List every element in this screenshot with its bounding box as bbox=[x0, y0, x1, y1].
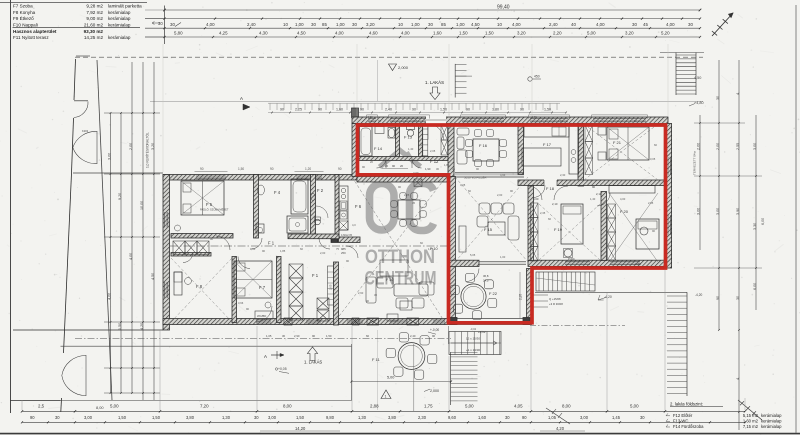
svg-text:45: 45 bbox=[412, 201, 415, 205]
svg-text:90: 90 bbox=[200, 167, 204, 171]
svg-text:+0,95: +0,95 bbox=[530, 115, 537, 119]
svg-text:90: 90 bbox=[432, 334, 436, 338]
svg-text:3,20: 3,20 bbox=[517, 31, 526, 36]
svg-text:5,00: 5,00 bbox=[630, 404, 639, 409]
svg-text:F 17: F 17 bbox=[543, 142, 552, 147]
svg-text:F 11: F 11 bbox=[372, 357, 380, 362]
svg-text:10: 10 bbox=[497, 22, 502, 27]
svg-text:+0,05: +0,05 bbox=[278, 367, 287, 371]
svg-text:5,20: 5,20 bbox=[661, 31, 670, 36]
svg-text:60: 60 bbox=[366, 334, 370, 338]
svg-text:1,00: 1,00 bbox=[500, 255, 506, 259]
svg-text:F 15: F 15 bbox=[484, 227, 493, 232]
svg-text:45: 45 bbox=[452, 167, 455, 171]
svg-text:2,90: 2,90 bbox=[294, 334, 300, 338]
svg-text:90: 90 bbox=[262, 249, 265, 253]
svg-text:250: 250 bbox=[341, 251, 346, 255]
svg-text:kerámialap: kerámialap bbox=[108, 16, 131, 21]
svg-text:+0,02: +0,02 bbox=[478, 330, 486, 334]
svg-text:85: 85 bbox=[441, 22, 446, 27]
svg-text:F 21: F 21 bbox=[613, 140, 622, 145]
svg-text:1,60: 1,60 bbox=[478, 415, 487, 420]
svg-text:90: 90 bbox=[338, 167, 342, 171]
svg-text:1,40: 1,40 bbox=[590, 197, 596, 201]
svg-text:20: 20 bbox=[385, 164, 389, 168]
svg-text:1,50: 1,50 bbox=[440, 107, 447, 111]
svg-text:1,50: 1,50 bbox=[118, 415, 127, 420]
svg-text:PUFF: PUFF bbox=[568, 257, 575, 261]
svg-text:kerámialap: kerámialap bbox=[761, 419, 782, 424]
svg-text:90: 90 bbox=[246, 307, 249, 311]
svg-text:5,05: 5,05 bbox=[470, 253, 476, 257]
svg-text:90: 90 bbox=[476, 167, 479, 171]
svg-text:laminált parketta: laminált parketta bbox=[108, 4, 142, 9]
svg-text:90: 90 bbox=[592, 185, 596, 189]
svg-text:9,80: 9,80 bbox=[326, 415, 335, 420]
svg-text:CENTRUM: CENTRUM bbox=[365, 268, 437, 290]
svg-text:F14 Fürdőszoba: F14 Fürdőszoba bbox=[673, 424, 704, 429]
svg-text:kerámialap: kerámialap bbox=[108, 35, 131, 40]
svg-text:2,20: 2,20 bbox=[553, 31, 562, 36]
svg-text:4,: 4, bbox=[736, 92, 740, 95]
svg-text:1,90: 1,90 bbox=[425, 167, 431, 171]
svg-text:8,00: 8,00 bbox=[283, 404, 292, 409]
svg-text:3,20: 3,20 bbox=[625, 31, 634, 36]
svg-text:4,50: 4,50 bbox=[151, 273, 155, 280]
svg-text:+4,80: +4,80 bbox=[694, 101, 704, 105]
svg-text:60: 60 bbox=[300, 247, 303, 251]
svg-text:3,20: 3,20 bbox=[151, 143, 155, 150]
svg-text:F 16: F 16 bbox=[479, 143, 488, 148]
svg-text:90: 90 bbox=[30, 415, 35, 420]
svg-text:4,00: 4,00 bbox=[107, 293, 111, 300]
svg-text:8,00: 8,00 bbox=[562, 404, 571, 409]
svg-text:90: 90 bbox=[634, 119, 637, 123]
svg-text:9,20: 9,20 bbox=[118, 193, 122, 200]
svg-text:450: 450 bbox=[534, 75, 540, 79]
svg-text:1,20: 1,20 bbox=[305, 167, 311, 171]
svg-text:6,00: 6,00 bbox=[753, 283, 757, 290]
svg-text:90: 90 bbox=[522, 415, 527, 420]
svg-text:6,00: 6,00 bbox=[761, 218, 765, 225]
svg-text:4,00: 4,00 bbox=[512, 22, 521, 27]
svg-text:2,000: 2,000 bbox=[398, 65, 409, 70]
svg-text:40: 40 bbox=[571, 22, 576, 27]
svg-text:45: 45 bbox=[643, 22, 648, 27]
svg-text:4,60: 4,60 bbox=[369, 31, 378, 36]
svg-text:F 4: F 4 bbox=[274, 190, 281, 195]
svg-text:30: 30 bbox=[311, 22, 316, 27]
svg-text:1,50: 1,50 bbox=[485, 31, 494, 36]
svg-text:60: 60 bbox=[560, 119, 563, 123]
svg-text:F 2: F 2 bbox=[317, 188, 324, 193]
svg-text:F12 Előtér: F12 Előtér bbox=[673, 413, 693, 418]
svg-text:2,30: 2,30 bbox=[418, 415, 427, 420]
svg-text:F 5: F 5 bbox=[206, 202, 213, 207]
svg-text:30: 30 bbox=[736, 296, 740, 300]
svg-text:4,25: 4,25 bbox=[219, 31, 228, 36]
svg-text:60: 60 bbox=[654, 143, 657, 147]
svg-text:2,00: 2,00 bbox=[716, 143, 720, 150]
svg-text:F 1: F 1 bbox=[312, 273, 319, 278]
svg-text:2,00: 2,00 bbox=[129, 143, 133, 150]
svg-text:kerámialap: kerámialap bbox=[761, 413, 782, 418]
svg-text:2,95: 2,95 bbox=[519, 294, 523, 300]
svg-text:1,75: 1,75 bbox=[428, 247, 434, 251]
svg-text:2,000: 2,000 bbox=[430, 389, 439, 393]
svg-text:2,35: 2,35 bbox=[540, 211, 546, 215]
svg-text:90: 90 bbox=[652, 229, 655, 233]
svg-text:1,05: 1,05 bbox=[548, 415, 557, 420]
svg-text:7,20: 7,20 bbox=[200, 404, 209, 409]
svg-text:+-0,00: +-0,00 bbox=[430, 328, 439, 332]
svg-text:2,10: 2,10 bbox=[552, 202, 558, 206]
svg-text:F7 Szoba: F7 Szoba bbox=[13, 4, 33, 9]
svg-text:30: 30 bbox=[254, 415, 259, 420]
svg-text:90: 90 bbox=[312, 334, 316, 338]
svg-text:30: 30 bbox=[640, 415, 645, 420]
svg-text:30: 30 bbox=[688, 22, 693, 27]
svg-text:2,40: 2,40 bbox=[247, 22, 256, 27]
svg-text:2,55: 2,55 bbox=[736, 143, 740, 150]
svg-text:4,00: 4,00 bbox=[206, 22, 215, 27]
svg-text:1,10: 1,10 bbox=[250, 247, 256, 251]
svg-text:4,00: 4,00 bbox=[401, 31, 410, 36]
svg-text:3,20: 3,20 bbox=[366, 22, 375, 27]
svg-text:90: 90 bbox=[280, 107, 284, 111]
svg-text:1,00: 1,00 bbox=[295, 22, 304, 27]
svg-text:-0,02: -0,02 bbox=[470, 327, 477, 331]
svg-text:21,60 m2: 21,60 m2 bbox=[84, 23, 104, 28]
svg-text:-4,20: -4,20 bbox=[604, 295, 612, 299]
svg-text:4,0: 4,0 bbox=[352, 223, 356, 227]
svg-text:4,50: 4,50 bbox=[471, 22, 480, 27]
svg-text:3,00: 3,00 bbox=[580, 415, 589, 420]
svg-text:30: 30 bbox=[374, 293, 377, 297]
svg-text:+0,95: +0,95 bbox=[366, 115, 373, 119]
svg-text:2,25: 2,25 bbox=[404, 193, 410, 197]
svg-text:3,00: 3,00 bbox=[753, 143, 757, 150]
svg-text:30: 30 bbox=[632, 22, 637, 27]
svg-text:90: 90 bbox=[466, 107, 470, 111]
svg-text:F 22: F 22 bbox=[489, 291, 498, 296]
svg-text:1,00: 1,00 bbox=[411, 22, 420, 27]
svg-text:2,40: 2,40 bbox=[385, 107, 392, 111]
svg-text:1. LAKÁS: 1. LAKÁS bbox=[425, 80, 444, 85]
svg-text:1,60 m2: 1,60 m2 bbox=[743, 419, 759, 424]
svg-text:2. lakás földszint:: 2. lakás földszint: bbox=[670, 401, 703, 406]
svg-text:1,50: 1,50 bbox=[152, 415, 161, 420]
svg-text:7,15 m2: 7,15 m2 bbox=[743, 424, 759, 429]
svg-text:30: 30 bbox=[352, 22, 357, 27]
svg-text:10: 10 bbox=[283, 22, 288, 27]
svg-text:A: A bbox=[240, 96, 243, 101]
svg-text:4,20: 4,20 bbox=[556, 426, 565, 431]
svg-text:30: 30 bbox=[282, 334, 286, 338]
svg-text:5,80: 5,80 bbox=[174, 31, 183, 36]
svg-text:1,45: 1,45 bbox=[612, 415, 621, 420]
svg-text:90: 90 bbox=[412, 107, 416, 111]
svg-text:1,60: 1,60 bbox=[336, 107, 343, 111]
svg-text:F11 Nyitott terasz: F11 Nyitott terasz bbox=[13, 35, 49, 40]
svg-text:4,05: 4,05 bbox=[514, 404, 523, 409]
svg-text:F 10: F 10 bbox=[386, 278, 393, 282]
svg-text:2,5: 2,5 bbox=[38, 404, 45, 409]
svg-text:30: 30 bbox=[170, 22, 175, 27]
svg-text:20: 20 bbox=[370, 160, 373, 164]
svg-text:2,25: 2,25 bbox=[412, 119, 418, 123]
svg-text:2,30: 2,30 bbox=[560, 173, 566, 177]
svg-text:1,30: 1,30 bbox=[358, 415, 367, 420]
svg-text:1,05: 1,05 bbox=[266, 334, 272, 338]
svg-text:+3 R 30/08: +3 R 30/08 bbox=[549, 302, 563, 306]
svg-text:Hasznos alapterület: Hasznos alapterület bbox=[13, 29, 57, 34]
svg-text:K293: K293 bbox=[82, 129, 89, 133]
svg-text:TERVEZETT 04-p: TERVEZETT 04-p bbox=[693, 150, 697, 175]
svg-text:4,00: 4,00 bbox=[129, 253, 133, 260]
svg-text:F 6: F 6 bbox=[355, 204, 362, 209]
svg-text:2,05: 2,05 bbox=[430, 149, 436, 153]
svg-text:4,20: 4,20 bbox=[140, 323, 144, 330]
svg-text:3,00: 3,00 bbox=[268, 415, 277, 420]
svg-text:F 13: F 13 bbox=[404, 135, 413, 140]
svg-text:5,00: 5,00 bbox=[387, 376, 394, 380]
svg-text:5,00: 5,00 bbox=[110, 404, 119, 409]
svg-text:90: 90 bbox=[716, 296, 720, 300]
svg-text:1,00: 1,00 bbox=[456, 22, 465, 27]
svg-text:F 8: F 8 bbox=[196, 284, 203, 289]
svg-text:90: 90 bbox=[362, 165, 365, 169]
svg-text:60: 60 bbox=[468, 189, 471, 193]
svg-text:4,60x2,05: 4,60x2,05 bbox=[341, 234, 353, 237]
svg-text:F 20: F 20 bbox=[620, 209, 629, 214]
svg-text:F 7: F 7 bbox=[259, 285, 266, 290]
svg-text:F 18: F 18 bbox=[546, 186, 555, 191]
svg-text:90: 90 bbox=[360, 107, 364, 111]
svg-text:1,85: 1,85 bbox=[444, 163, 450, 167]
svg-text:4,05: 4,05 bbox=[460, 183, 466, 187]
svg-text:90: 90 bbox=[318, 107, 322, 111]
svg-text:60: 60 bbox=[420, 241, 423, 245]
svg-text:1,50: 1,50 bbox=[296, 415, 305, 420]
svg-text:2,88: 2,88 bbox=[370, 404, 379, 409]
svg-text:1,80: 1,80 bbox=[492, 107, 499, 111]
svg-text:9,00 m2: 9,00 m2 bbox=[86, 16, 103, 21]
svg-text:2,40: 2,40 bbox=[410, 334, 416, 338]
svg-text:93,30 m2: 93,30 m2 bbox=[84, 29, 104, 34]
svg-text:90: 90 bbox=[346, 259, 349, 263]
svg-text:30: 30 bbox=[428, 22, 433, 27]
svg-text:OTTHON: OTTHON bbox=[365, 246, 435, 268]
svg-text:4,30: 4,30 bbox=[259, 31, 268, 36]
svg-text:2,05: 2,05 bbox=[329, 284, 333, 290]
svg-text:5,00: 5,00 bbox=[465, 404, 474, 409]
svg-text:3,90: 3,90 bbox=[736, 208, 740, 215]
svg-text:2,00: 2,00 bbox=[696, 143, 700, 150]
svg-text:14,25 m2: 14,25 m2 bbox=[84, 35, 104, 40]
svg-text:7,92 m2: 7,92 m2 bbox=[86, 10, 103, 15]
svg-text:8,00: 8,00 bbox=[96, 405, 104, 410]
svg-text:F10 Nappali: F10 Nappali bbox=[13, 23, 38, 28]
svg-text:4,00: 4,00 bbox=[666, 22, 675, 27]
svg-text:30: 30 bbox=[716, 96, 720, 100]
svg-text:F13 WC: F13 WC bbox=[673, 419, 688, 424]
svg-text:2,55: 2,55 bbox=[648, 201, 654, 205]
svg-text:5050 VB.FILLÉR: 5050 VB.FILLÉR bbox=[464, 175, 487, 180]
svg-text:36,8: 36,8 bbox=[483, 274, 489, 278]
svg-text:F 14: F 14 bbox=[374, 146, 383, 151]
svg-text:1,40: 1,40 bbox=[188, 235, 194, 239]
svg-text:14,20: 14,20 bbox=[295, 426, 306, 431]
svg-text:90: 90 bbox=[366, 299, 369, 303]
svg-text:1,0 KERÍTÉSVONALTÓL: 1,0 KERÍTÉSVONALTÓL bbox=[145, 132, 150, 168]
svg-text:4,00: 4,00 bbox=[335, 31, 344, 36]
svg-text:1,85: 1,85 bbox=[280, 249, 286, 253]
svg-text:F8 Konyha: F8 Konyha bbox=[13, 10, 36, 15]
svg-text:1,50: 1,50 bbox=[238, 167, 244, 171]
svg-text:90: 90 bbox=[392, 164, 396, 168]
svg-text:3,30: 3,30 bbox=[753, 223, 757, 230]
svg-text:60: 60 bbox=[420, 143, 423, 147]
svg-text:30: 30 bbox=[505, 415, 510, 420]
svg-text:90: 90 bbox=[510, 189, 513, 193]
svg-text:20: 20 bbox=[400, 164, 404, 168]
svg-text:A: A bbox=[264, 354, 267, 359]
svg-text:F 1: F 1 bbox=[268, 241, 275, 246]
svg-text:4,50: 4,50 bbox=[297, 31, 306, 36]
svg-text:24,5: 24,5 bbox=[483, 279, 489, 283]
svg-text:F 19: F 19 bbox=[554, 227, 563, 232]
svg-text:3,00: 3,00 bbox=[696, 208, 700, 215]
svg-text:90: 90 bbox=[210, 237, 213, 241]
svg-text:90: 90 bbox=[484, 119, 487, 123]
svg-text:2,00: 2,00 bbox=[497, 193, 503, 197]
svg-text:4,60: 4,60 bbox=[500, 173, 506, 177]
svg-text:9,60: 9,60 bbox=[448, 415, 457, 420]
svg-text:Q +15/08: Q +15/08 bbox=[549, 297, 561, 301]
svg-text:1,60: 1,60 bbox=[433, 31, 442, 36]
svg-text:10,00: 10,00 bbox=[140, 201, 144, 210]
svg-text:-3,66: -3,66 bbox=[634, 262, 641, 266]
svg-text:30: 30 bbox=[436, 167, 439, 171]
svg-text:5,00: 5,00 bbox=[587, 31, 596, 36]
svg-text:3,80: 3,80 bbox=[388, 415, 397, 420]
svg-text:4,50: 4,50 bbox=[694, 76, 701, 80]
svg-text:30: 30 bbox=[158, 21, 163, 26]
svg-text:2,25: 2,25 bbox=[295, 107, 302, 111]
svg-text:12 x 15/30: 12 x 15/30 bbox=[466, 337, 480, 341]
svg-text:3,00: 3,00 bbox=[84, 415, 93, 420]
svg-text:4,00: 4,00 bbox=[620, 197, 626, 201]
svg-text:-4,20: -4,20 bbox=[695, 293, 702, 297]
svg-text:1,75: 1,75 bbox=[424, 404, 433, 409]
svg-text:kerámialap: kerámialap bbox=[108, 23, 131, 28]
svg-text:3,00: 3,00 bbox=[716, 208, 720, 215]
svg-text:kerámialap: kerámialap bbox=[108, 10, 131, 15]
svg-text:90: 90 bbox=[398, 185, 401, 189]
svg-text:+1 x 14/30: +1 x 14/30 bbox=[466, 348, 480, 352]
svg-text:90: 90 bbox=[378, 119, 381, 123]
svg-text:kerámialap: kerámialap bbox=[761, 424, 782, 429]
svg-text:1,00: 1,00 bbox=[336, 22, 345, 27]
svg-text:3,00: 3,00 bbox=[107, 153, 111, 160]
svg-text:85: 85 bbox=[322, 22, 327, 27]
svg-text:10: 10 bbox=[398, 22, 403, 27]
svg-text:3,05: 3,05 bbox=[650, 157, 656, 161]
svg-text:F9 Étkező: F9 Étkező bbox=[13, 15, 34, 21]
svg-text:1,50: 1,50 bbox=[459, 31, 468, 36]
svg-text:9,28 m2: 9,28 m2 bbox=[86, 4, 103, 9]
svg-text:2,60: 2,60 bbox=[358, 291, 364, 295]
svg-text:1,50: 1,50 bbox=[118, 323, 122, 330]
svg-text:4,: 4, bbox=[736, 377, 740, 380]
svg-text:60: 60 bbox=[548, 217, 551, 221]
svg-text:2,40: 2,40 bbox=[549, 22, 558, 27]
svg-text:1: 1 bbox=[385, 395, 387, 399]
svg-text:2,10: 2,10 bbox=[596, 192, 602, 196]
svg-text:F 12: F 12 bbox=[430, 159, 439, 164]
svg-text:3,80: 3,80 bbox=[186, 415, 195, 420]
svg-text:1,40: 1,40 bbox=[408, 147, 414, 151]
svg-text:3,66: 3,66 bbox=[238, 301, 244, 305]
svg-text:90: 90 bbox=[270, 167, 274, 171]
svg-text:75: 75 bbox=[336, 247, 339, 251]
svg-text:WC/BD: WC/BD bbox=[257, 314, 266, 318]
svg-text:90: 90 bbox=[440, 155, 443, 159]
svg-text:1,30: 1,30 bbox=[222, 415, 231, 420]
svg-text:5,15 m2: 5,15 m2 bbox=[743, 413, 759, 418]
svg-text:1,50: 1,50 bbox=[326, 334, 332, 338]
svg-text:30: 30 bbox=[55, 415, 60, 420]
svg-text:4,00: 4,00 bbox=[596, 22, 605, 27]
svg-text:2,00: 2,00 bbox=[320, 251, 326, 255]
